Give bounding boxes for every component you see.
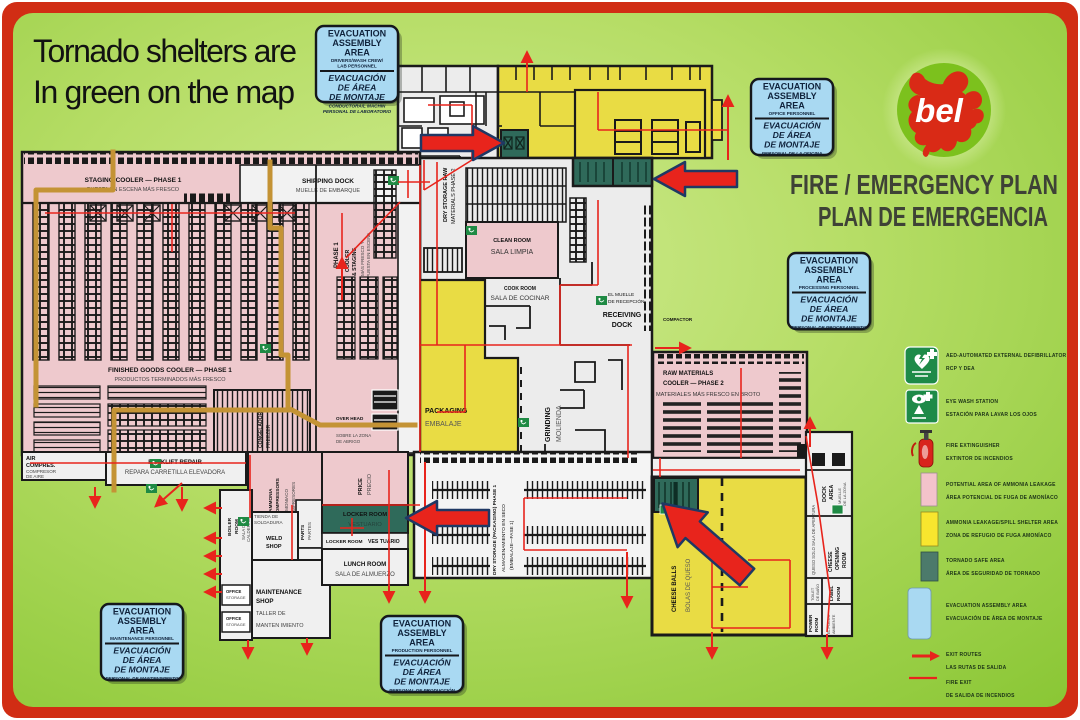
- svg-text:BOLAS DE QUESO: BOLAS DE QUESO: [686, 558, 692, 612]
- svg-text:OFFICE: OFFICE: [226, 616, 242, 621]
- svg-text:POTENTIAL AREA OF AMMONIA LEAK: POTENTIAL AREA OF AMMONIA LEAKAGE: [946, 482, 1056, 488]
- svg-text:LAS RUTAS DE SALIDA: LAS RUTAS DE SALIDA: [946, 665, 1007, 671]
- svg-text:FIRE EXTINGUISHER: FIRE EXTINGUISHER: [946, 443, 1000, 449]
- svg-text:AREA: AREA: [816, 275, 842, 285]
- svg-text:DE MONTAJE: DE MONTAJE: [801, 314, 857, 324]
- svg-text:RAW MATERIALS: RAW MATERIALS: [663, 371, 713, 377]
- svg-text:FIRE / EMERGENCY PLAN: FIRE / EMERGENCY PLAN: [790, 169, 1058, 200]
- svg-text:LUNCH ROOM: LUNCH ROOM: [344, 561, 387, 568]
- svg-text:PUESTA EN ESCENA: PUESTA EN ESCENA: [366, 231, 371, 278]
- svg-text:AED-AUTOMATED EXTERNAL DEFIBRI: AED-AUTOMATED EXTERNAL DEFIBRILLATOR: [946, 353, 1067, 359]
- svg-text:DE ÁREA: DE ÁREA: [773, 130, 812, 140]
- svg-text:PERSONAL DE PROCESAMIENTO: PERSONAL DE PROCESAMIENTO: [792, 325, 867, 330]
- svg-text:MAINTENANCE PERSONNEL: MAINTENANCE PERSONNEL: [110, 636, 174, 641]
- svg-text:PHASE 1: PHASE 1: [334, 242, 340, 268]
- svg-text:REPARA CARRETILLA ELEVADORA: REPARA CARRETILLA ELEVADORA: [125, 470, 225, 476]
- svg-text:COOK ROOM: COOK ROOM: [504, 286, 536, 292]
- svg-text:EVACUACIÓN DE ÁREA DE MONTAJE: EVACUACIÓN DE ÁREA DE MONTAJE: [946, 614, 1043, 622]
- svg-text:PRICE: PRICE: [358, 478, 364, 495]
- svg-text:DRY STORAGE (PACKAGING) PHA: DRY STORAGE (PACKAGING) PHASE 1: [492, 484, 498, 575]
- svg-text:PERSONAL DE LA OFICINA: PERSONAL DE LA OFICINA: [762, 151, 823, 156]
- svg-text:SHOP: SHOP: [266, 544, 282, 550]
- svg-text:CHEESE BALLS: CHEESE BALLS: [672, 566, 678, 612]
- svg-text:PERSONAL DE LABORATORIO: PERSONAL DE LABORATORIO: [323, 109, 392, 114]
- svg-text:WELD: WELD: [266, 536, 282, 542]
- svg-text:(EMBALAJE—FASE 1): (EMBALAJE—FASE 1): [509, 520, 515, 570]
- svg-text:PARTS: PARTS: [300, 525, 305, 540]
- svg-text:AREA: AREA: [829, 485, 835, 500]
- svg-text:VES TUARIO: VES TUARIO: [368, 539, 400, 545]
- svg-text:STAGING COOLER — PHASE 1: STAGING COOLER — PHASE 1: [85, 177, 182, 184]
- svg-text:VESTUARIO: VESTUARIO: [348, 522, 382, 528]
- svg-text:EVACUACIÓN: EVACUACIÓN: [328, 72, 386, 83]
- svg-text:ZONA DE REFUGIO DE FUGA AMONÍA: ZONA DE REFUGIO DE FUGA AMONÍACO: [946, 531, 1052, 539]
- svg-text:AREA: AREA: [779, 101, 805, 111]
- svg-text:ALMACENAMIENTO EN SECO: ALMACENAMIENTO EN SECO: [501, 504, 507, 572]
- svg-text:MAINTENANCE: MAINTENANCE: [256, 589, 302, 596]
- svg-text:ASSEMBLY: ASSEMBLY: [804, 265, 853, 275]
- svg-text:DE ÁREA: DE ÁREA: [338, 83, 377, 93]
- svg-text:ROOM: ROOM: [842, 552, 848, 568]
- svg-text:EYE WASH STATION: EYE WASH STATION: [946, 399, 998, 405]
- svg-text:CONDUCTORA/L MACHIN: CONDUCTORA/L MACHIN: [329, 104, 386, 109]
- svg-text:EVACUATION ASSEMBLY AREA: EVACUATION ASSEMBLY AREA: [946, 603, 1027, 609]
- svg-text:STORAGE: STORAGE: [226, 622, 246, 627]
- svg-text:DE MONTAJE: DE MONTAJE: [114, 665, 170, 675]
- svg-text:FREEZER: FREEZER: [266, 424, 272, 448]
- svg-text:EVACUATION: EVACUATION: [763, 82, 821, 92]
- svg-text:LAB PERSONNEL: LAB PERSONNEL: [337, 64, 376, 69]
- svg-text:PRECIO: PRECIO: [367, 473, 373, 495]
- svg-text:ROOM: ROOM: [836, 587, 841, 601]
- svg-text:ASSEMBLY: ASSEMBLY: [397, 628, 446, 638]
- svg-text:STORAGE: STORAGE: [226, 595, 246, 600]
- svg-text:SALA LIMPIA: SALA LIMPIA: [491, 249, 534, 256]
- svg-text:AREA: AREA: [409, 638, 435, 648]
- svg-text:MATERIALES MÁS FRESCO EN BROTO: MATERIALES MÁS FRESCO EN BROTO: [656, 391, 761, 398]
- svg-text:COMPRESSORS: COMPRESSORS: [275, 477, 281, 516]
- svg-text:DE LA ZONA: DE LA ZONA: [842, 482, 847, 506]
- svg-text:Tornado shelters are: Tornado shelters are: [33, 33, 297, 69]
- svg-text:ASSEMBLY: ASSEMBLY: [117, 616, 166, 626]
- svg-text:PROCESSING PERSONNEL: PROCESSING PERSONNEL: [799, 285, 860, 290]
- svg-text:AMONIACO: AMONIACO: [284, 489, 289, 514]
- svg-text:AMMONIA: AMMONIA: [268, 488, 274, 512]
- svg-text:DE BAÑO: DE BAÑO: [815, 584, 820, 601]
- svg-text:PLAN DE EMERGENCIA: PLAN DE EMERGENCIA: [818, 201, 1048, 232]
- svg-text:FIRE EXIT: FIRE EXIT: [946, 680, 972, 686]
- svg-text:TORNADO SAFE AREA: TORNADO SAFE AREA: [946, 558, 1005, 564]
- svg-text:MÁS FRESCO Y: MÁS FRESCO Y: [359, 241, 365, 276]
- svg-text:LOCKER ROOM: LOCKER ROOM: [343, 512, 387, 518]
- svg-text:EVACUATION: EVACUATION: [328, 29, 386, 39]
- svg-text:LOCKER ROOM: LOCKER ROOM: [326, 539, 363, 545]
- svg-text:DE ÁREA: DE ÁREA: [123, 655, 162, 665]
- svg-text:EXTINTOR DE INCENDIOS: EXTINTOR DE INCENDIOS: [946, 456, 1013, 462]
- svg-text:bel: bel: [915, 92, 964, 129]
- svg-text:BOILER: BOILER: [227, 517, 233, 536]
- svg-text:MOLIENDA: MOLIENDA: [556, 405, 563, 442]
- svg-text:SALA DE ALMUERZO: SALA DE ALMUERZO: [335, 572, 395, 578]
- svg-text:OVER HEAD: OVER HEAD: [336, 416, 364, 421]
- svg-text:MANTEN IMIENTO: MANTEN IMIENTO: [256, 623, 304, 629]
- svg-text:AMMONIA LEAKAGE/SPILL SHELTER: AMMONIA LEAKAGE/SPILL SHELTER AREA: [946, 520, 1058, 526]
- svg-text:TIENDA DE: TIENDA DE: [254, 514, 278, 519]
- svg-text:EVACUACIÓN: EVACUACIÓN: [763, 120, 821, 131]
- svg-text:DOCK: DOCK: [822, 486, 828, 502]
- svg-text:PERSONAL DE MANTENIMIENTO: PERSONAL DE MANTENIMIENTO: [105, 676, 179, 681]
- svg-text:AMBIENTE: AMBIENTE: [832, 614, 836, 634]
- svg-text:EL MUELLE: EL MUELLE: [608, 292, 634, 298]
- svg-text:ASSEMBLY: ASSEMBLY: [767, 91, 816, 101]
- svg-text:EVACUACIÓN: EVACUACIÓN: [800, 294, 858, 305]
- svg-text:In green on the map: In green on the map: [33, 74, 295, 110]
- svg-text:PRODUCTION PERSONNEL: PRODUCTION PERSONNEL: [392, 648, 453, 653]
- svg-text:DOCK: DOCK: [612, 322, 633, 329]
- svg-text:EVACUATION: EVACUATION: [393, 619, 451, 629]
- svg-text:PERSONAL DE PRODUCCIÓN: PERSONAL DE PRODUCCIÓN: [389, 687, 455, 693]
- svg-text:ESTACIÓN PARA LAVAR LOS OJOS: ESTACIÓN PARA LAVAR LOS OJOS: [946, 410, 1037, 418]
- svg-text:EXIT ROUTES: EXIT ROUTES: [946, 652, 982, 658]
- svg-text:TALLER DE: TALLER DE: [256, 611, 286, 617]
- svg-text:COOLER — PHASE 2: COOLER — PHASE 2: [663, 381, 724, 387]
- svg-text:CHEESE: CHEESE: [828, 551, 834, 572]
- svg-text:AREA: AREA: [129, 626, 155, 636]
- svg-text:SOLDADURA: SOLDADURA: [254, 520, 284, 525]
- svg-text:PARTES: PARTES: [307, 522, 312, 540]
- svg-text:DE RECEPCIÓN: DE RECEPCIÓN: [608, 298, 645, 305]
- svg-text:FINISHED GOODS COOLER — PH: FINISHED GOODS COOLER — PHASE 1: [108, 367, 232, 374]
- svg-text:MUELLE DE EMBARQUE: MUELLE DE EMBARQUE: [296, 188, 361, 194]
- svg-text:PRODUCTOS TERMINADOS MÁS FRESC: PRODUCTOS TERMINADOS MÁS FRESCO: [114, 376, 226, 383]
- svg-text:SHOP: SHOP: [256, 598, 274, 605]
- svg-text:ASSEMBLY: ASSEMBLY: [332, 38, 381, 48]
- svg-text:RCP Y DEA: RCP Y DEA: [946, 366, 975, 372]
- svg-text:ÁREA DE SEGURIDAD DE TORNADO: ÁREA DE SEGURIDAD DE TORNADO: [946, 570, 1040, 577]
- svg-text:DE MONTAJE: DE MONTAJE: [764, 140, 820, 150]
- svg-text:OPENING: OPENING: [835, 547, 841, 570]
- svg-text:EVACUATION: EVACUATION: [800, 256, 858, 266]
- svg-text:DE ÁREA: DE ÁREA: [403, 667, 442, 677]
- svg-text:DE ABRIGO: DE ABRIGO: [336, 439, 361, 444]
- svg-text:DE MONTAJE: DE MONTAJE: [394, 677, 450, 687]
- svg-text:EMBALAJE: EMBALAJE: [425, 421, 462, 428]
- svg-text:CLEAN ROOM: CLEAN ROOM: [493, 238, 531, 244]
- svg-text:AREA: AREA: [344, 48, 370, 58]
- svg-text:DE MONTAJE: DE MONTAJE: [329, 92, 385, 102]
- svg-text:DE SALIDA DE INCENDIOS: DE SALIDA DE INCENDIOS: [946, 693, 1015, 699]
- svg-text:QUESO SOLO SALA DE APERTURA: QUESO SOLO SALA DE APERTURA: [811, 505, 816, 575]
- svg-text:COMPACTOR: COMPACTOR: [663, 317, 693, 322]
- svg-text:POWER: POWER: [808, 614, 813, 632]
- svg-text:EVACUATION: EVACUATION: [113, 607, 171, 617]
- svg-text:SHIPPING DOCK: SHIPPING DOCK: [302, 178, 354, 185]
- svg-text:OFFICE: OFFICE: [226, 589, 242, 594]
- svg-text:DE AIRE: DE AIRE: [26, 474, 44, 479]
- svg-text:DRIVERS/WASH CREW/: DRIVERS/WASH CREW/: [331, 58, 384, 63]
- svg-text:DE ÁREA: DE ÁREA: [810, 304, 849, 314]
- svg-text:OFFICE PERSONNEL: OFFICE PERSONNEL: [769, 111, 816, 116]
- svg-text:AIR: AIR: [26, 456, 36, 462]
- svg-text:ROOM: ROOM: [814, 618, 819, 632]
- svg-text:RECEIVING: RECEIVING: [603, 312, 642, 319]
- svg-text:EVACUACIÓN: EVACUACIÓN: [393, 657, 451, 668]
- svg-text:SALA DE COCINAR: SALA DE COCINAR: [491, 295, 550, 302]
- svg-text:SOBRE LA ZONA: SOBRE LA ZONA: [336, 433, 371, 438]
- svg-text:CONGELADOR: CONGELADOR: [258, 412, 264, 449]
- svg-text:ÁREA POTENCIAL DE FUGA DE AMON: ÁREA POTENCIAL DE FUGA DE AMONÍACO: [946, 493, 1058, 501]
- svg-text:MATERIALS PHASE 2: MATERIALS PHASE 2: [451, 168, 457, 224]
- svg-text:EVACUACIÓN: EVACUACIÓN: [113, 645, 171, 656]
- svg-text:TOILET: TOILET: [811, 587, 815, 601]
- svg-text:GRINDING: GRINDING: [545, 406, 552, 442]
